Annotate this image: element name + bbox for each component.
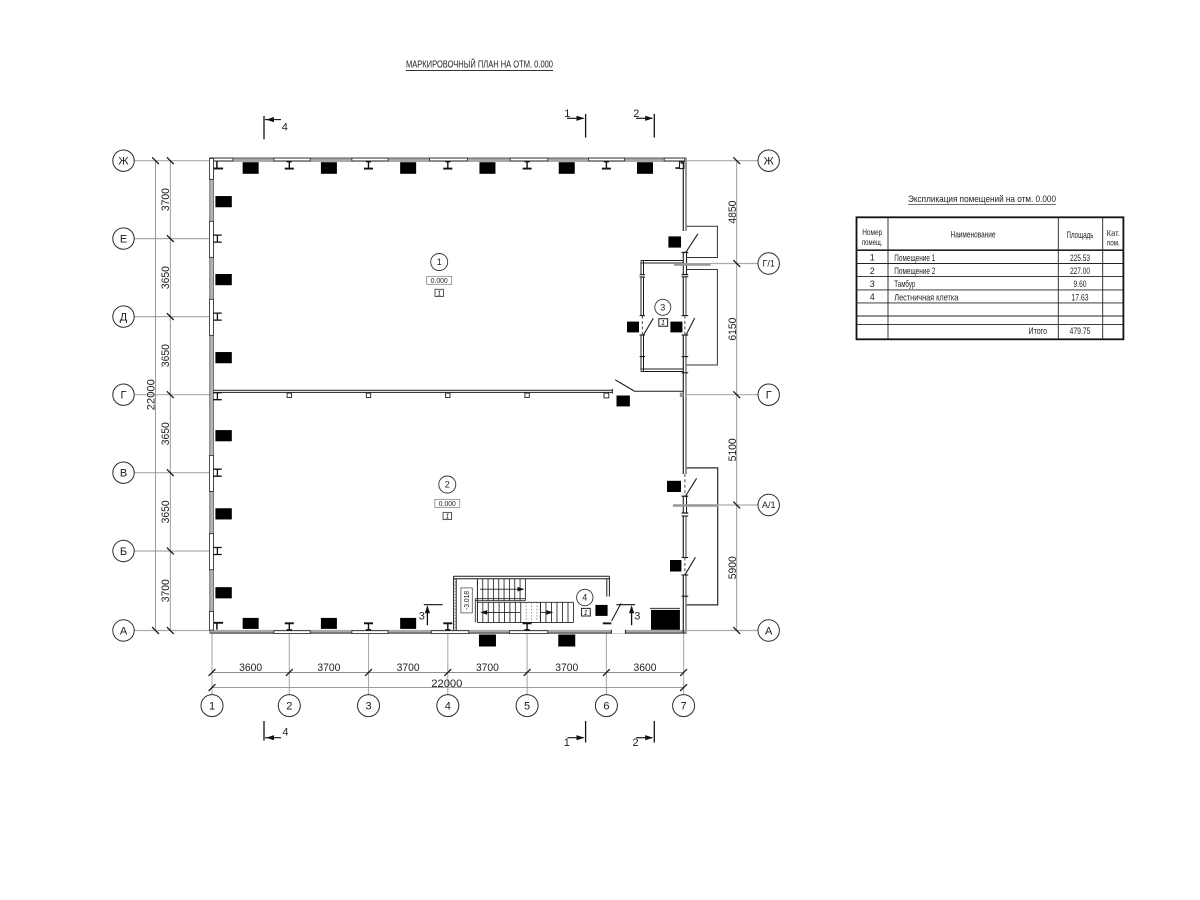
svg-text:1: 1 [209,701,215,713]
svg-text:3650: 3650 [160,344,172,367]
svg-text:3650: 3650 [160,500,172,523]
svg-text:Площадь: Площадь [1067,230,1094,240]
svg-text:помещ.: помещ. [862,237,883,247]
svg-text:2: 2 [870,266,875,276]
svg-text:5900: 5900 [727,556,739,579]
svg-text:3650: 3650 [160,266,172,289]
svg-text:1: 1 [445,512,449,521]
svg-text:МАРКИРОВОЧНЫЙ ПЛАН НА ОТМ. 0.0: МАРКИРОВОЧНЫЙ ПЛАН НА ОТМ. 0.000 [406,58,553,71]
svg-text:6: 6 [603,701,609,713]
svg-text:2: 2 [286,701,292,713]
svg-text:Помещение 2: Помещение 2 [894,266,935,276]
svg-text:Тамбур: Тамбур [894,279,915,289]
svg-text:225.53: 225.53 [1070,253,1090,263]
svg-text:1: 1 [564,108,570,120]
svg-text:4: 4 [282,122,288,134]
svg-text:3: 3 [634,610,640,622]
svg-text:1: 1 [584,608,588,617]
svg-text:Помещение 1: Помещение 1 [894,253,935,263]
svg-text:Г: Г [766,390,772,402]
svg-text:4850: 4850 [727,201,739,224]
svg-text:3: 3 [365,701,371,713]
svg-text:3700: 3700 [317,662,340,674]
svg-text:4: 4 [870,292,875,302]
svg-text:5: 5 [524,701,530,713]
svg-text:2: 2 [445,480,450,490]
svg-text:5100: 5100 [727,438,739,461]
svg-text:2: 2 [632,737,638,749]
svg-text:Д: Д [120,312,128,324]
svg-text:4: 4 [445,701,451,713]
svg-text:Г/1: Г/1 [763,259,775,269]
svg-text:1: 1 [870,253,875,263]
svg-text:7: 7 [681,701,687,713]
svg-text:3: 3 [870,279,875,289]
svg-text:Г: Г [121,390,127,402]
svg-text:Лестничная клетка: Лестничная клетка [894,292,958,302]
svg-text:4: 4 [282,727,288,739]
svg-text:3700: 3700 [476,662,499,674]
svg-text:22000: 22000 [431,678,462,690]
svg-text:1: 1 [564,737,570,749]
svg-text:0.000: 0.000 [439,499,456,508]
svg-text:479.75: 479.75 [1070,326,1091,336]
svg-text:6150: 6150 [727,318,739,341]
svg-text:3700: 3700 [160,579,172,602]
svg-text:1: 1 [437,257,442,267]
svg-text:3700: 3700 [555,662,578,674]
svg-text:1: 1 [437,289,441,298]
svg-text:Ж: Ж [764,156,774,168]
svg-text:-3.018: -3.018 [464,591,471,610]
svg-text:3: 3 [660,303,665,313]
svg-text:Б: Б [120,546,127,558]
svg-text:17.63: 17.63 [1072,292,1089,302]
svg-text:22000: 22000 [146,379,158,410]
svg-text:Номер: Номер [862,227,882,237]
svg-text:3: 3 [419,610,425,622]
svg-text:0.000: 0.000 [431,276,448,285]
svg-text:3600: 3600 [239,662,262,674]
svg-text:Итого: Итого [1029,326,1048,336]
svg-text:А/1: А/1 [762,500,776,510]
svg-text:Ж: Ж [118,156,128,168]
svg-text:Экспликация помещений на отм.: Экспликация помещений на отм. 0.000 [908,194,1056,205]
svg-text:2: 2 [633,108,639,120]
svg-text:А: А [765,625,773,637]
svg-text:1: 1 [661,318,665,327]
svg-text:3600: 3600 [634,662,657,674]
svg-text:3650: 3650 [160,422,172,445]
svg-text:В: В [120,468,127,480]
svg-text:А: А [120,625,128,637]
svg-text:3700: 3700 [397,662,420,674]
svg-text:9.60: 9.60 [1074,279,1087,289]
svg-text:Е: Е [120,234,127,246]
svg-text:пом.: пом. [1107,238,1120,248]
svg-text:227.00: 227.00 [1070,266,1090,276]
svg-text:Наименование: Наименование [951,230,996,240]
svg-text:Кат.: Кат. [1107,228,1120,238]
svg-text:3700: 3700 [160,188,172,211]
svg-text:4: 4 [582,593,587,603]
